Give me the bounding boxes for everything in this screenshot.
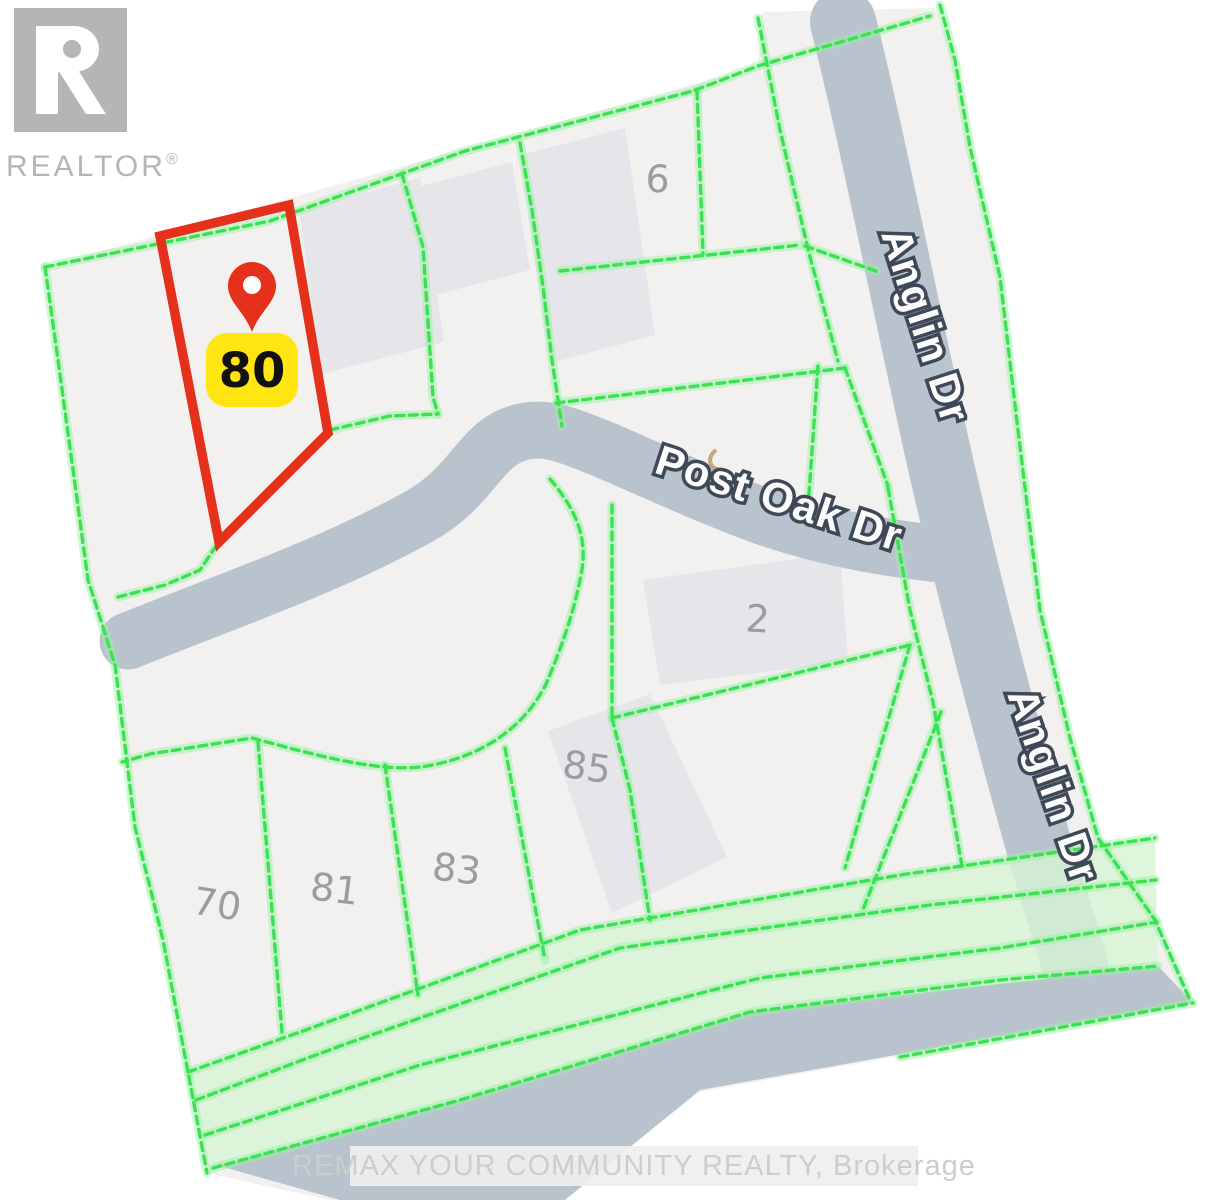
lot-number-badge: 80	[206, 333, 298, 407]
lot-label-85: 85	[560, 742, 614, 792]
lot-label-83: 83	[430, 844, 483, 894]
badge-lot-number: 80	[219, 343, 286, 399]
brokerage-watermark: REMAX YOUR COMMUNITY REALTY, Brokerage	[292, 1146, 976, 1186]
listing-map-image: 80 Anglin Dr Post Oak Dr Anglin Dr 6 2 8…	[0, 0, 1213, 1200]
lot-label-81: 81	[308, 864, 361, 914]
lot-label-6: 6	[644, 156, 670, 201]
lot-label-70: 70	[190, 879, 245, 930]
realtor-logo: REALTOR®	[6, 8, 181, 183]
realtor-logo-text: REALTOR®	[6, 150, 181, 183]
parcel-map: 80 Anglin Dr Post Oak Dr Anglin Dr 6 2 8…	[0, 0, 1213, 1200]
lot-label-2: 2	[744, 596, 770, 641]
brokerage-watermark-text: REMAX YOUR COMMUNITY REALTY, Brokerage	[292, 1150, 976, 1182]
